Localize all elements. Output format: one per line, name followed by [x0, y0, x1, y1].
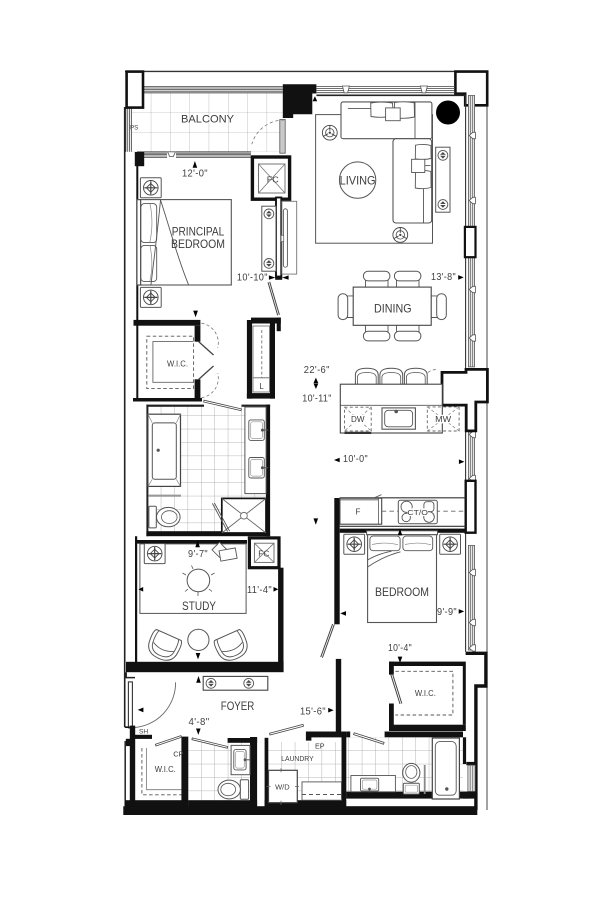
svg-text:BALCONY: BALCONY — [181, 114, 234, 126]
svg-text:LIVING: LIVING — [340, 174, 376, 187]
svg-text:15'-6": 15'-6" — [300, 707, 326, 718]
svg-text:STUDY: STUDY — [182, 599, 216, 613]
svg-text:DINING: DINING — [374, 301, 412, 315]
svg-text:DW: DW — [351, 415, 365, 424]
svg-text:FOYER: FOYER — [221, 699, 255, 713]
svg-text:4'-8": 4'-8" — [189, 717, 210, 728]
svg-text:LAUNDRY: LAUNDRY — [281, 754, 314, 763]
svg-text:10'-0": 10'-0" — [343, 454, 368, 465]
svg-text:W/D: W/D — [275, 782, 290, 791]
svg-text:W.I.C.: W.I.C. — [155, 765, 176, 774]
svg-text:10'-10": 10'-10" — [237, 273, 268, 284]
svg-text:10'-4": 10'-4" — [388, 643, 412, 654]
svg-text:F: F — [356, 508, 361, 517]
svg-text:13'-8": 13'-8" — [431, 272, 456, 283]
svg-text:9'-9": 9'-9" — [437, 607, 457, 618]
svg-text:L: L — [259, 382, 264, 391]
svg-text:FC: FC — [267, 175, 279, 185]
svg-text:MW: MW — [435, 415, 452, 424]
svg-text:11'-4": 11'-4" — [247, 585, 272, 596]
svg-text:BEDROOM: BEDROOM — [171, 237, 225, 251]
svg-text:SH: SH — [139, 728, 148, 735]
svg-text:12'-0": 12'-0" — [182, 169, 208, 180]
svg-text:W.I.C.: W.I.C. — [167, 360, 188, 369]
svg-text:10'-11": 10'-11" — [302, 393, 332, 404]
svg-text:BEDROOM: BEDROOM — [375, 585, 429, 599]
svg-text:CP: CP — [173, 749, 183, 758]
svg-text:FC: FC — [258, 549, 269, 559]
svg-text:W.I.C.: W.I.C. — [415, 689, 436, 698]
svg-text:CT/O: CT/O — [407, 510, 428, 517]
svg-text:22'-6": 22'-6" — [304, 365, 330, 376]
svg-text:9'-7": 9'-7" — [188, 549, 208, 560]
svg-text:EP: EP — [315, 741, 325, 750]
svg-text:PS: PS — [130, 124, 138, 131]
